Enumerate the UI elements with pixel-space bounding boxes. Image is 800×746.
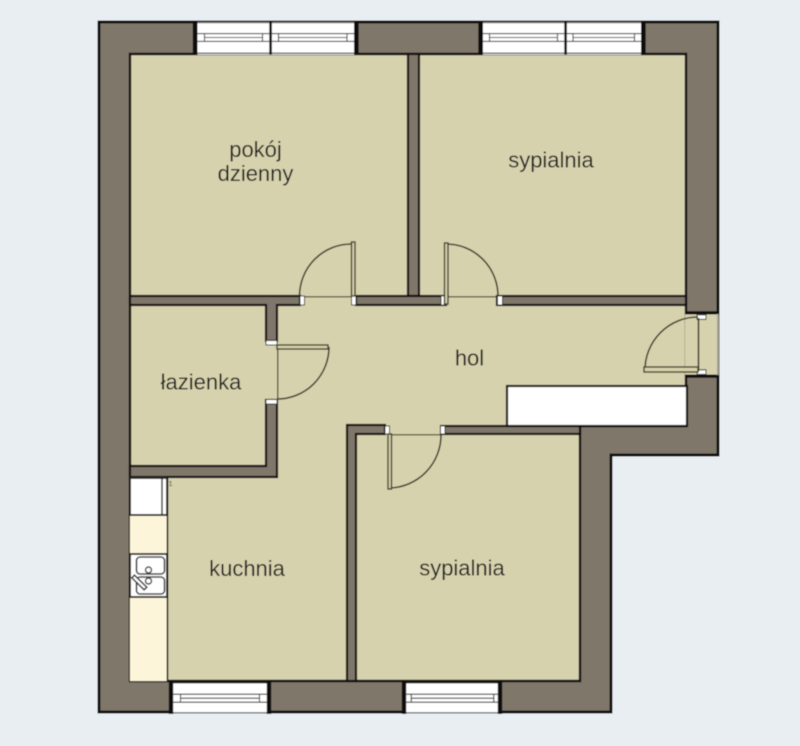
svg-text:dzienny: dzienny — [218, 161, 294, 186]
svg-text:sypialnia: sypialnia — [508, 148, 594, 173]
svg-text:sypialnia: sypialnia — [419, 556, 505, 581]
svg-text:łazienka: łazienka — [161, 370, 242, 395]
svg-text:hol: hol — [455, 346, 484, 371]
svg-text:kuchnia: kuchnia — [209, 556, 286, 581]
svg-text:1: 1 — [169, 479, 173, 488]
svg-text:pokój: pokój — [229, 137, 282, 162]
